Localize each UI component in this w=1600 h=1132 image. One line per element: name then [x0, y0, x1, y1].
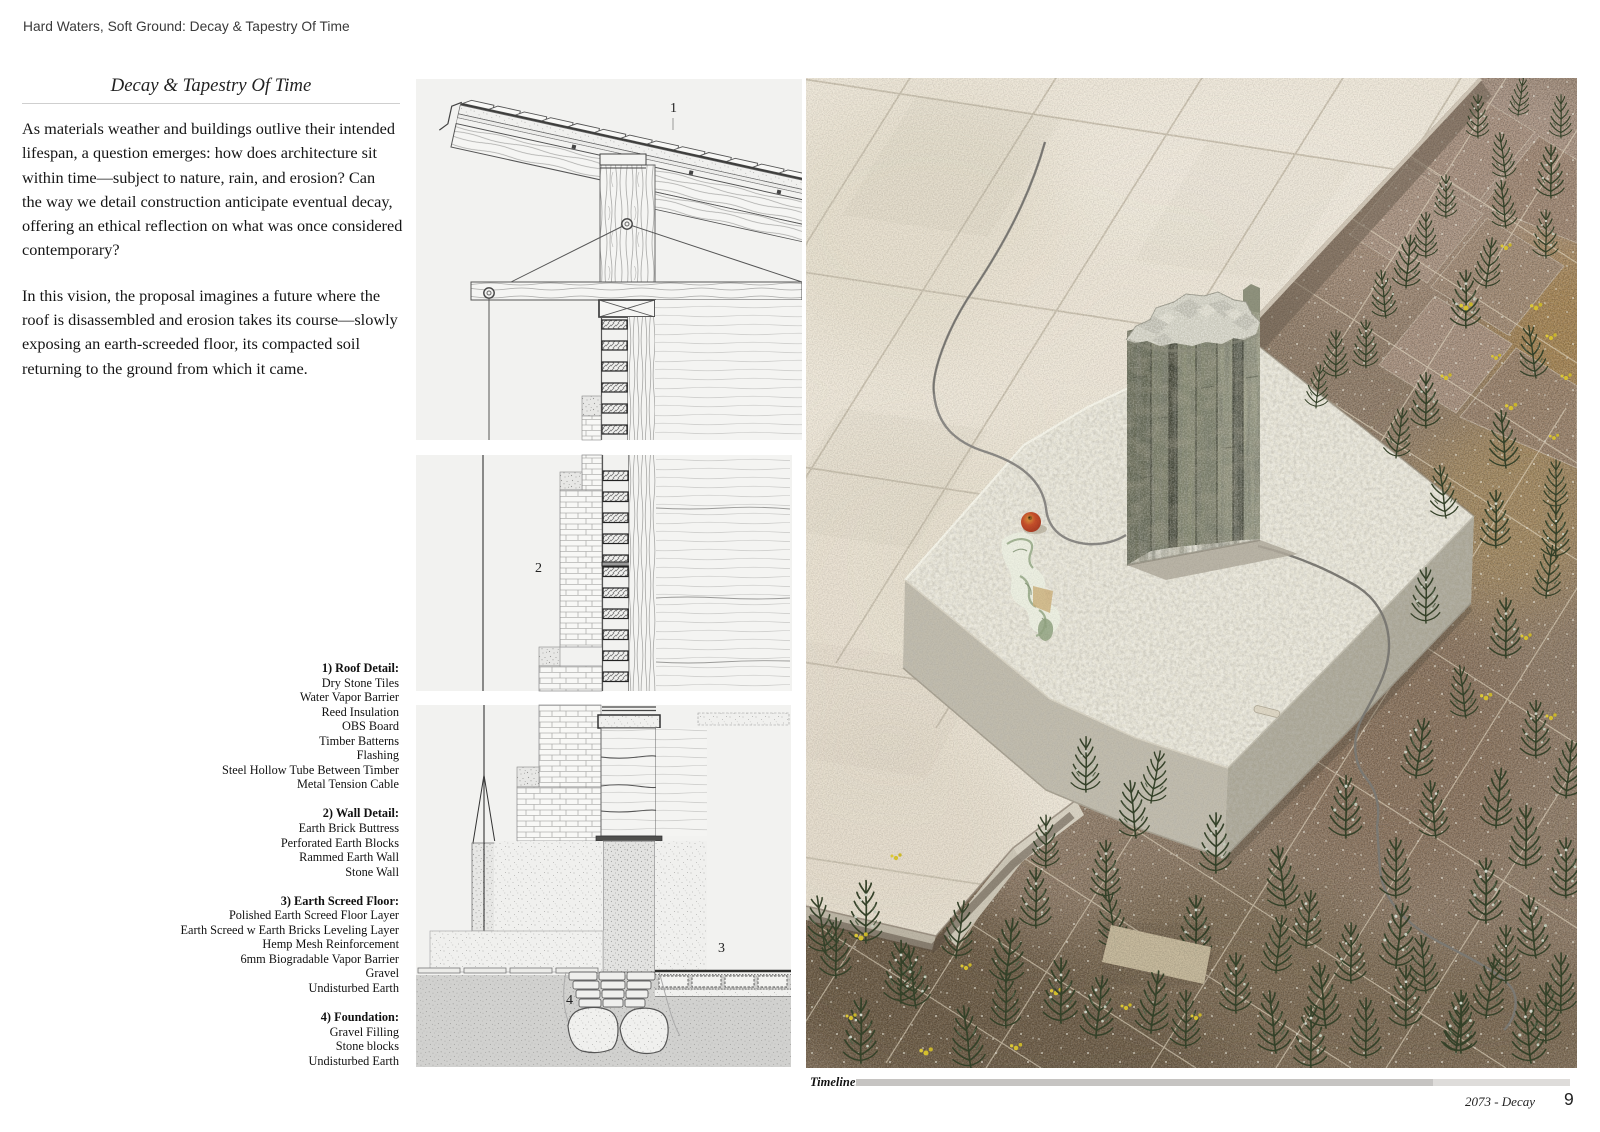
svg-text:2: 2 [535, 561, 542, 576]
svg-text:4: 4 [566, 993, 573, 1008]
svg-text:3: 3 [718, 941, 725, 956]
svg-text:1: 1 [670, 101, 677, 116]
